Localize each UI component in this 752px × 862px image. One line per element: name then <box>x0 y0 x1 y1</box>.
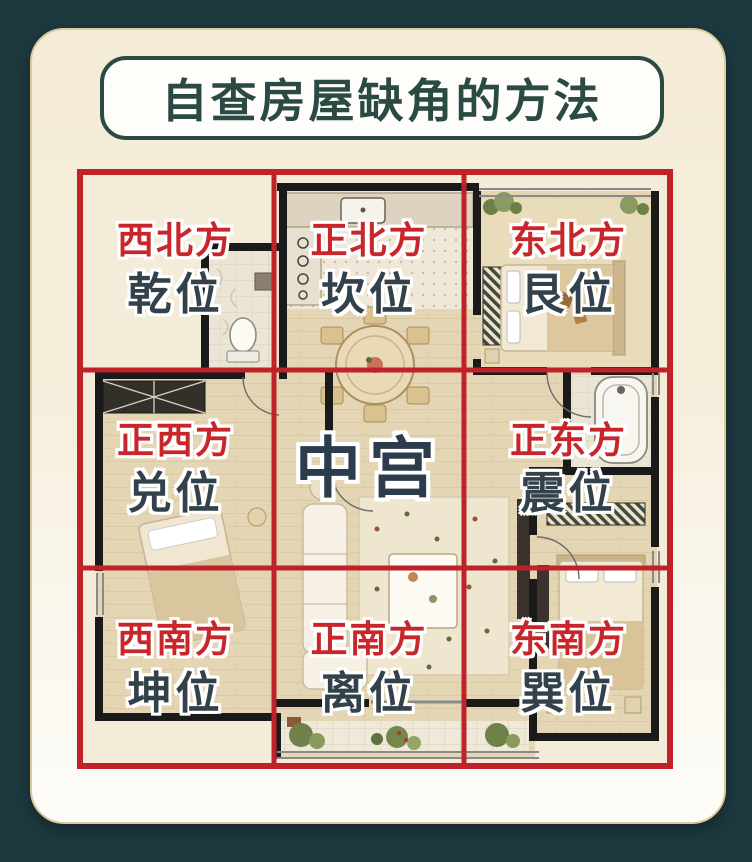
direction-label: 正南方 <box>311 619 428 662</box>
trigram-label: 坤位 <box>128 670 224 718</box>
direction-label: 正东方 <box>510 420 627 463</box>
center-palace-label: 中宫 <box>295 433 443 506</box>
trigram-label: 坎位 <box>321 271 417 319</box>
grid-cell-west: 正西方 兑位 <box>77 370 274 568</box>
grid-cell-center: 中宫 <box>274 370 464 568</box>
floor-plan-area: 西北方 乾位 正北方 坎位 东北方 艮位 正西方 兑位 中宫 正东方 震位 <box>77 169 673 769</box>
direction-label: 西北方 <box>117 220 234 263</box>
direction-label: 西南方 <box>117 619 234 662</box>
grid-cell-north: 正北方 坎位 <box>274 169 464 370</box>
direction-label: 正北方 <box>311 220 428 263</box>
grid-cell-east: 正东方 震位 <box>464 370 673 568</box>
grid-cell-southeast: 东南方 巽位 <box>464 568 673 769</box>
poster-card: 自查房屋缺角的方法 <box>30 28 726 824</box>
page-title: 自查房屋缺角的方法 <box>162 65 603 131</box>
page-background: { "page": { "background_color": "#1d3a40… <box>0 0 752 862</box>
direction-label: 东北方 <box>510 220 627 263</box>
grid-cell-southwest: 西南方 坤位 <box>77 568 274 769</box>
grid-cell-south: 正南方 离位 <box>274 568 464 769</box>
trigram-label: 离位 <box>321 670 417 718</box>
trigram-label: 艮位 <box>521 271 617 319</box>
trigram-label: 巽位 <box>521 670 617 718</box>
trigram-label: 兑位 <box>128 470 224 518</box>
direction-label: 东南方 <box>510 619 627 662</box>
grid-cell-northeast: 东北方 艮位 <box>464 169 673 370</box>
compass-label-grid: 西北方 乾位 正北方 坎位 东北方 艮位 正西方 兑位 中宫 正东方 震位 <box>77 169 673 769</box>
grid-cell-northwest: 西北方 乾位 <box>77 169 274 370</box>
title-box: 自查房屋缺角的方法 <box>100 56 664 140</box>
direction-label: 正西方 <box>117 420 234 463</box>
trigram-label: 震位 <box>521 470 617 518</box>
trigram-label: 乾位 <box>128 271 224 319</box>
